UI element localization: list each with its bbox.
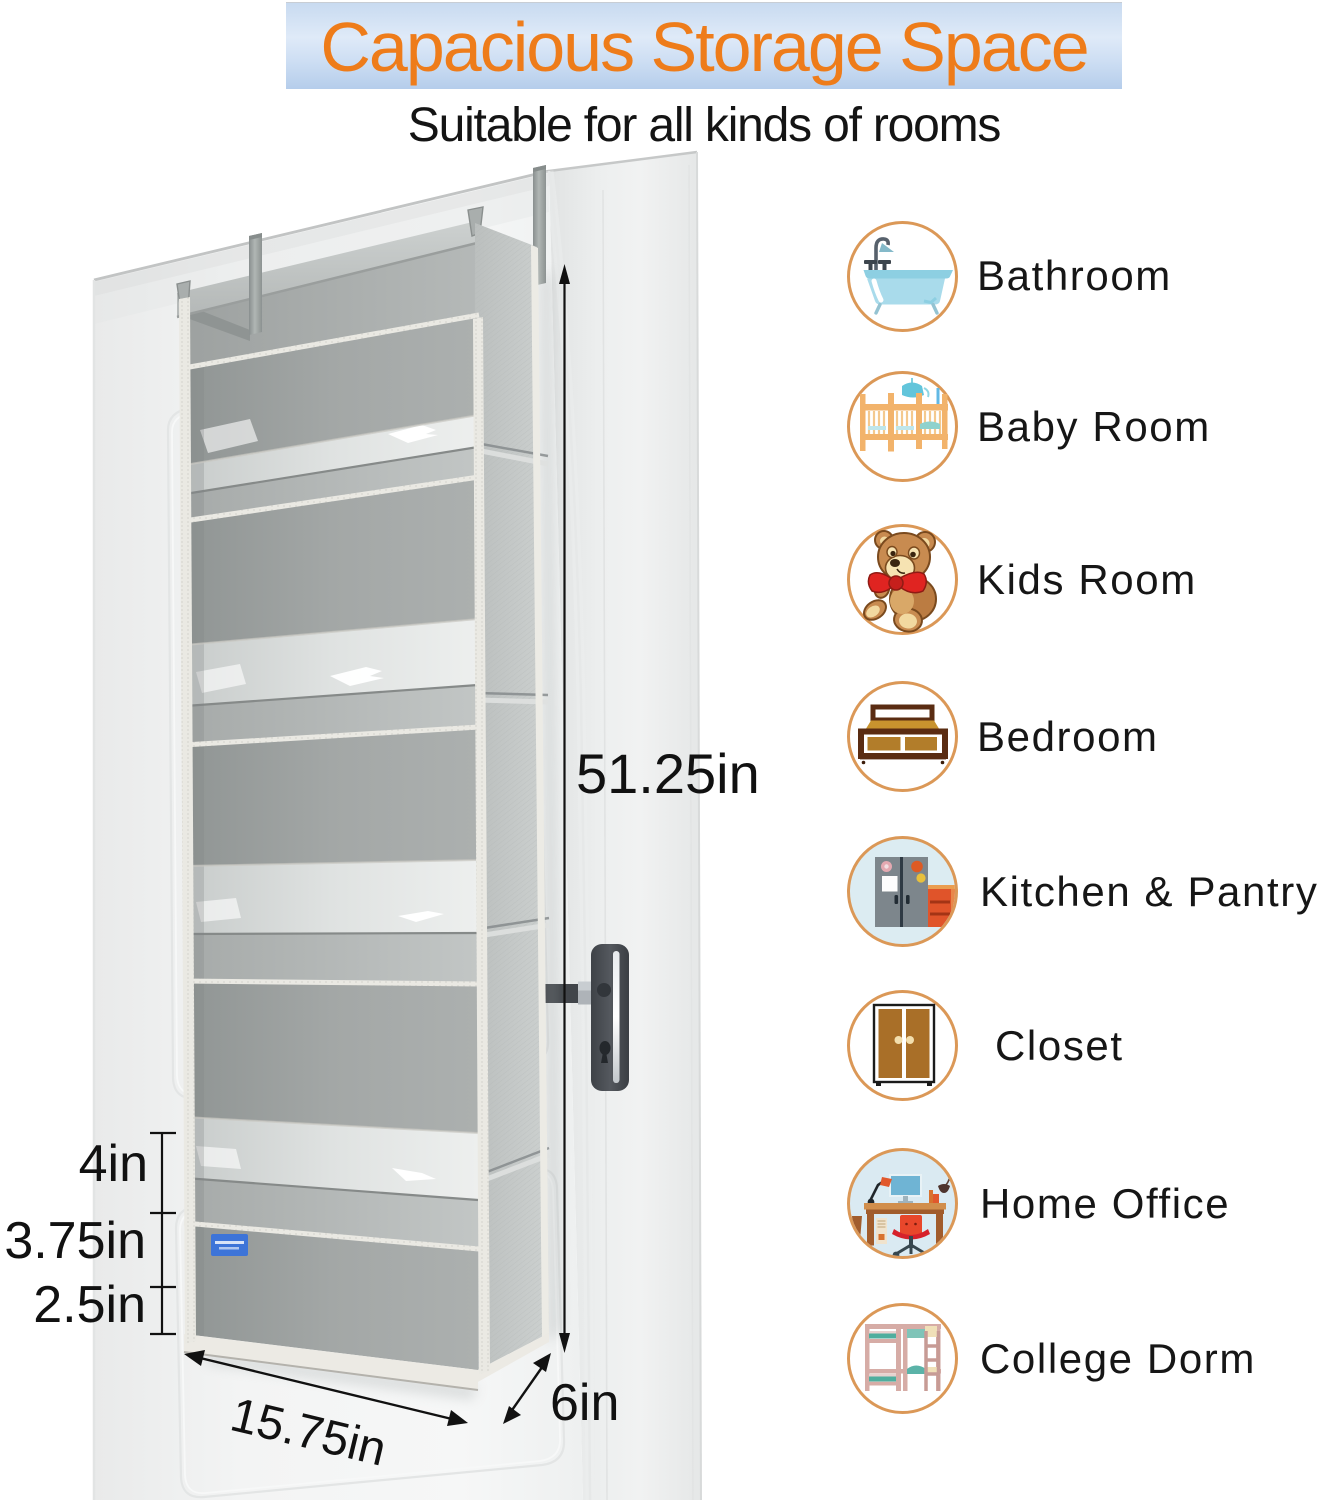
svg-text:51.25in: 51.25in	[576, 742, 760, 805]
svg-text:4in: 4in	[79, 1135, 148, 1193]
svg-text:3.75in: 3.75in	[4, 1212, 146, 1270]
svg-text:2.5in: 2.5in	[33, 1276, 146, 1334]
svg-text:6in: 6in	[550, 1374, 619, 1432]
